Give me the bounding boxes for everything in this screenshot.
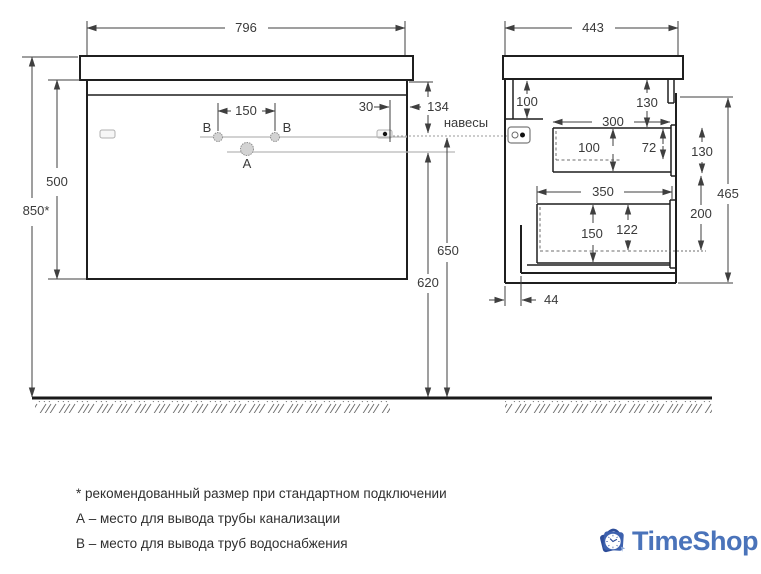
dim-drawer1-300: 300 — [602, 114, 624, 129]
callout-hangers: навесы — [444, 115, 488, 130]
dim-spacing-150: 150 — [235, 103, 257, 118]
drain-hole — [241, 143, 254, 156]
dim-drawer1-72: 72 — [642, 140, 656, 155]
dim-side-200: 200 — [690, 206, 712, 221]
dim-drain-620: 620 — [417, 275, 439, 290]
timeshop-logo-icon — [598, 512, 630, 570]
dim-width-796: 796 — [235, 20, 257, 35]
dim-side-130: 130 — [691, 144, 713, 159]
footnotes: * рекомендованный размер при стандартном… — [76, 481, 447, 556]
dim-topgap-130: 130 — [636, 95, 658, 110]
dim-height-500: 500 — [46, 174, 68, 189]
hanger-bracket — [508, 127, 530, 143]
water-hole-left — [214, 133, 223, 142]
water-hole-right — [271, 133, 280, 142]
hanger-point — [383, 132, 387, 136]
dim-drawer2-122: 122 — [616, 222, 638, 237]
technical-drawing-page: B B A 796 500 — [0, 0, 761, 574]
dim-total-465: 465 — [717, 186, 739, 201]
side-countertop — [503, 56, 683, 79]
timeshop-logo[interactable]: TimeShop — [598, 511, 758, 571]
timeshop-logo-text: TimeShop — [632, 526, 758, 557]
dim-drawer1-100: 100 — [578, 140, 600, 155]
label-a: A — [243, 156, 252, 171]
floor-line — [32, 398, 712, 413]
hanger-slot-left — [100, 130, 115, 138]
dim-hanger-30: 30 — [359, 99, 373, 114]
side-view — [503, 56, 706, 283]
label-b-left: B — [203, 120, 212, 135]
footnote-drain-legend: А – место для вывода трубы канализации — [76, 506, 447, 531]
dim-depth-443: 443 — [582, 20, 604, 35]
dim-mount-850: 850* — [23, 203, 50, 218]
front-countertop — [80, 56, 413, 80]
footnote-water-legend: В – место для вывода труб водоснабжения — [76, 531, 447, 556]
dim-drawer2-350: 350 — [592, 184, 614, 199]
dim-rail-100: 100 — [516, 94, 538, 109]
dim-offset-134: 134 — [427, 99, 449, 114]
dim-drawer2-150: 150 — [581, 226, 603, 241]
label-b-right: B — [283, 120, 292, 135]
dim-water-650: 650 — [437, 243, 459, 258]
dim-back-44: 44 — [544, 292, 558, 307]
vanity-installation-drawing: B B A 796 500 — [0, 0, 761, 460]
footnote-recommended-size: * рекомендованный размер при стандартном… — [76, 481, 447, 506]
